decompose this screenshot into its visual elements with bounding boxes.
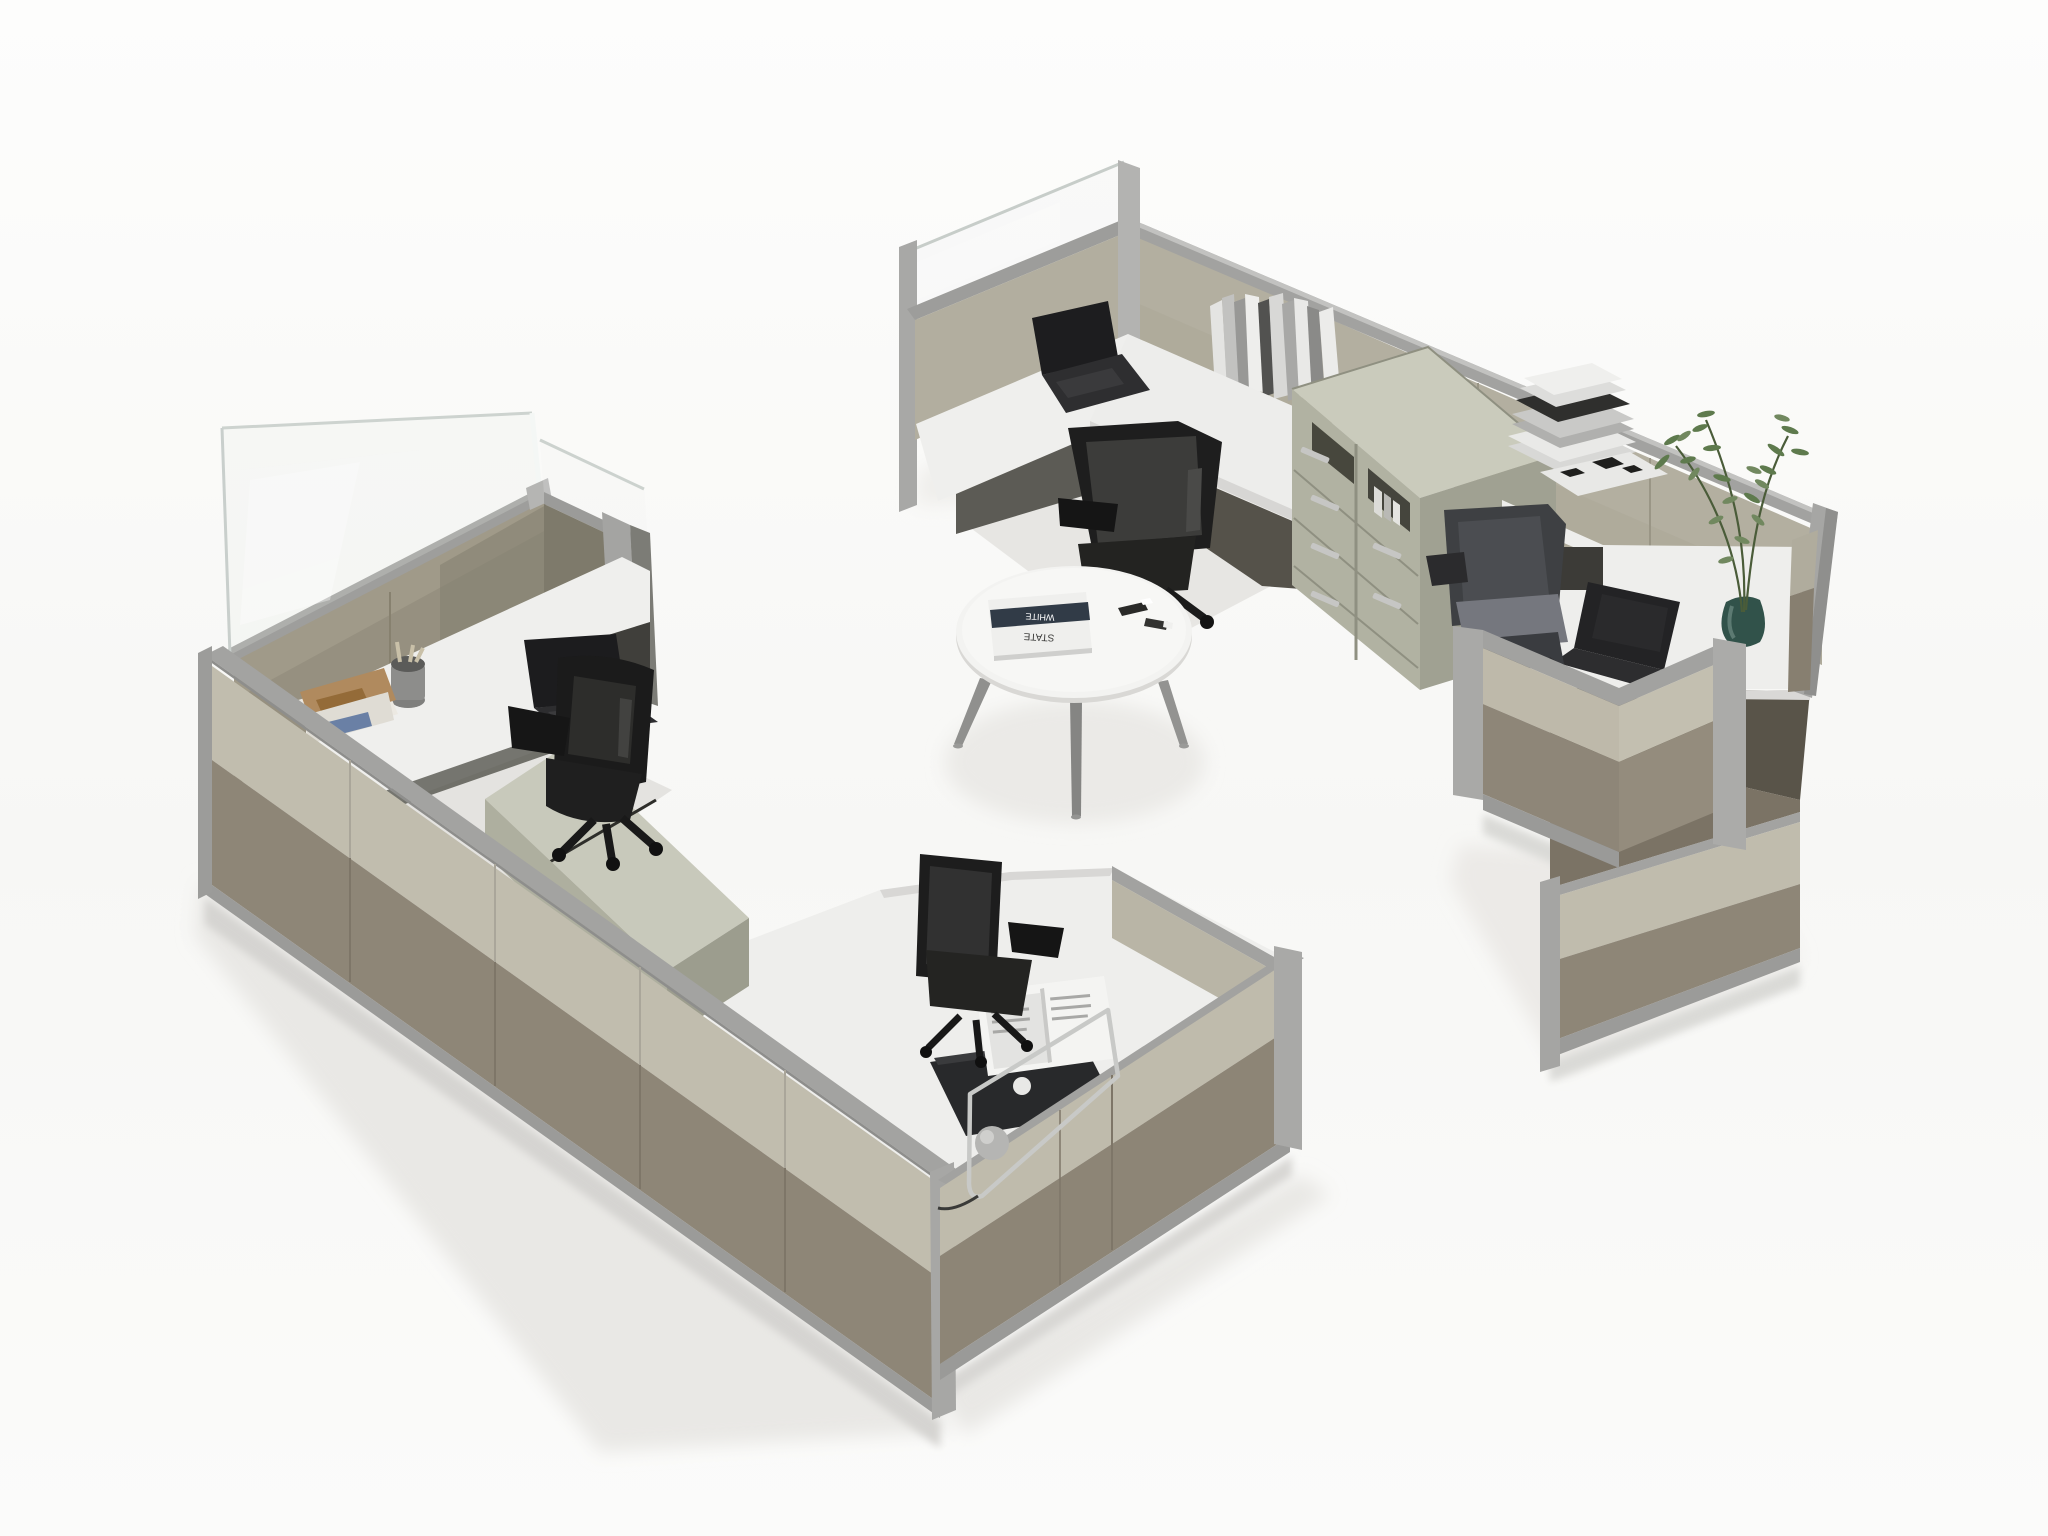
svg-text:STATE: STATE: [1023, 630, 1055, 643]
svg-text:WHITE: WHITE: [1025, 611, 1054, 623]
